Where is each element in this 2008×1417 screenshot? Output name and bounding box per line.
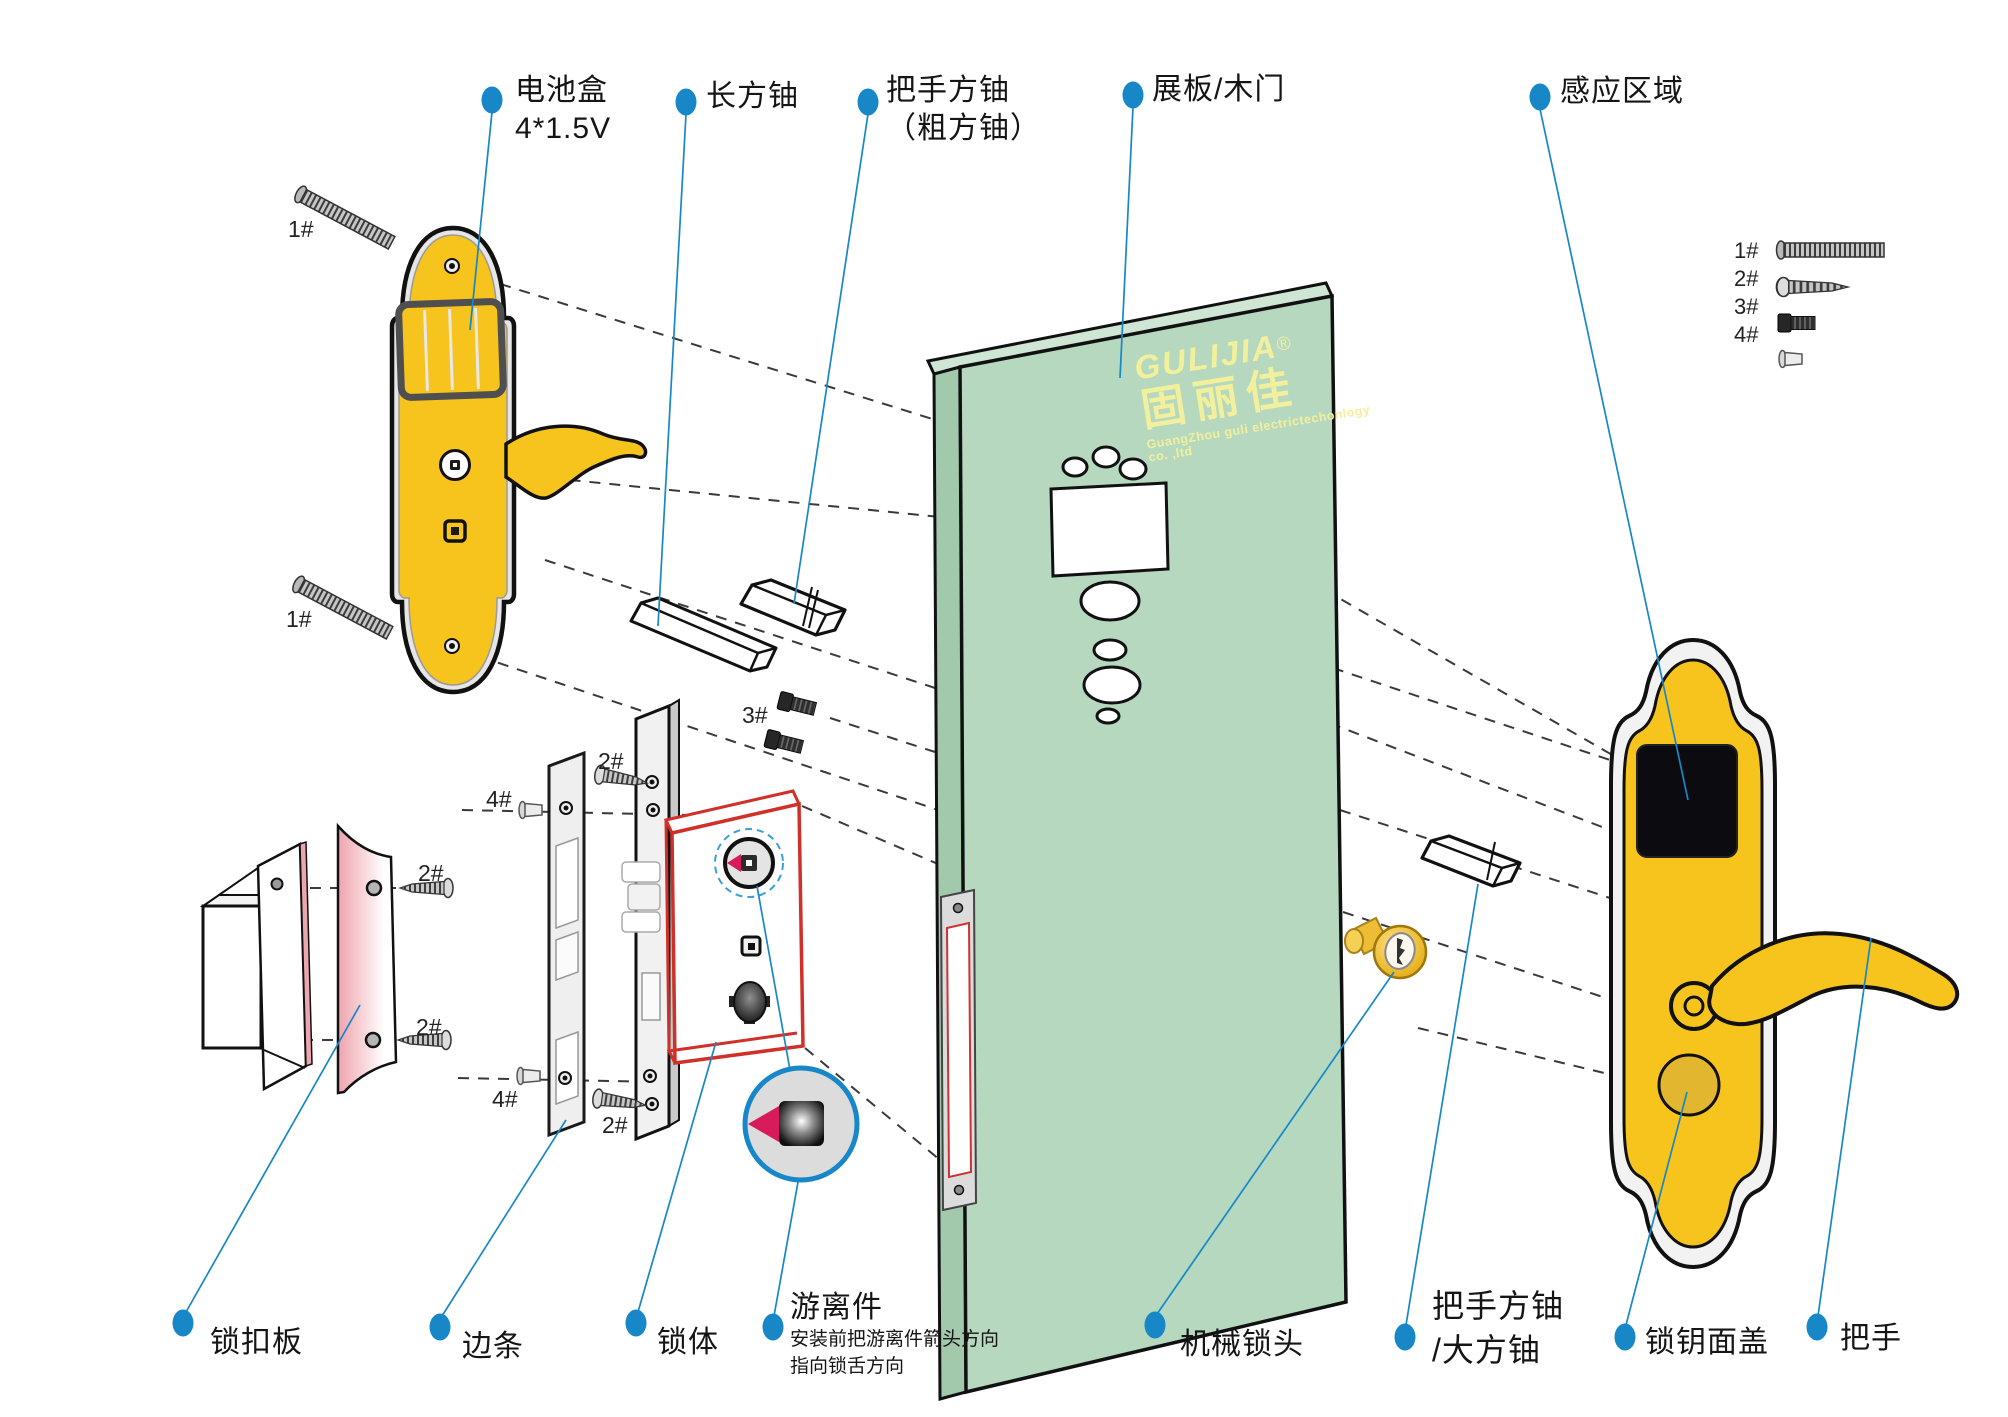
tag-screw-2-strip-top: 2# xyxy=(598,748,624,775)
installation-diagram: GULIJIA® 固丽佳 GuangZhou guli electrictech… xyxy=(0,0,2008,1417)
tag-screw-3: 3# xyxy=(742,702,768,729)
tag-screw-2-strike-top: 2# xyxy=(418,860,444,887)
screw-3-upper xyxy=(777,691,817,717)
registered-mark-icon: ® xyxy=(1275,333,1292,356)
label-handle: 把手 xyxy=(1840,1320,1902,1358)
label-strike-plate: 锁扣板 xyxy=(210,1324,303,1362)
lock-body xyxy=(666,791,803,1063)
plug-4-top xyxy=(519,802,542,819)
tag-screw-4-bottom: 4# xyxy=(492,1086,518,1113)
screw-3-lower xyxy=(764,729,804,755)
screw-legend-graphics xyxy=(1777,241,1885,368)
plug-4-bottom xyxy=(517,1068,540,1085)
mechanical-cylinder xyxy=(1345,918,1426,978)
legend-screw-2: 2# xyxy=(1734,266,1758,292)
label-key-cover: 锁钥面盖 xyxy=(1645,1324,1769,1362)
tag-screw-1-upper: 1# xyxy=(288,216,314,243)
outdoor-plate xyxy=(1611,640,1957,1267)
strike-plate-group xyxy=(203,826,396,1093)
strike-plate xyxy=(338,826,396,1093)
label-mechanical-cylinder: 机械锁头 xyxy=(1180,1326,1304,1364)
tag-screw-2-strip-bottom: 2# xyxy=(602,1112,628,1139)
door-mortise-plate xyxy=(941,890,976,1210)
label-edge-strip: 边条 xyxy=(462,1328,524,1366)
diagram-artwork xyxy=(0,0,2008,1417)
label-long-shaft: 长方铀 xyxy=(706,78,799,116)
key-cover[interactable] xyxy=(1659,1055,1719,1115)
label-handle-shaft: 把手方铀 （粗方铀） xyxy=(886,72,1041,148)
tag-screw-4-top: 4# xyxy=(486,786,512,813)
label-door-panel: 展板/木门 xyxy=(1152,71,1285,109)
tag-screw-1-lower: 1# xyxy=(286,606,312,633)
label-floating-piece: 游离件 安装前把游离件箭头方向 指向锁舌方向 xyxy=(790,1290,999,1380)
floating-piece-detail xyxy=(745,1068,857,1180)
indoor-plate xyxy=(392,228,645,692)
tag-screw-2-strike-bottom: 2# xyxy=(416,1014,442,1041)
legend-screw-1: 1# xyxy=(1734,238,1758,264)
label-sensing-area: 感应区域 xyxy=(1560,73,1684,111)
spindle-hole-round xyxy=(441,451,470,480)
big-square-shaft xyxy=(1422,836,1520,886)
thick-square-shaft xyxy=(741,580,845,635)
edge-strip-a xyxy=(549,753,584,1135)
legend-screw-4: 4# xyxy=(1734,322,1758,348)
sensing-screen[interactable] xyxy=(1637,745,1737,857)
label-big-shaft: 把手方铀 /大方铀 xyxy=(1432,1284,1564,1372)
indoor-handle xyxy=(506,426,645,498)
door-panel xyxy=(928,283,1346,1399)
label-lock-body: 锁体 xyxy=(657,1324,719,1362)
legend-screw-3: 3# xyxy=(1734,294,1758,320)
edge-strip-b xyxy=(622,700,679,1139)
label-battery-box: 电池盒 4*1.5V xyxy=(515,72,611,148)
battery-box xyxy=(398,301,503,398)
spindle-hole-square xyxy=(445,521,465,541)
